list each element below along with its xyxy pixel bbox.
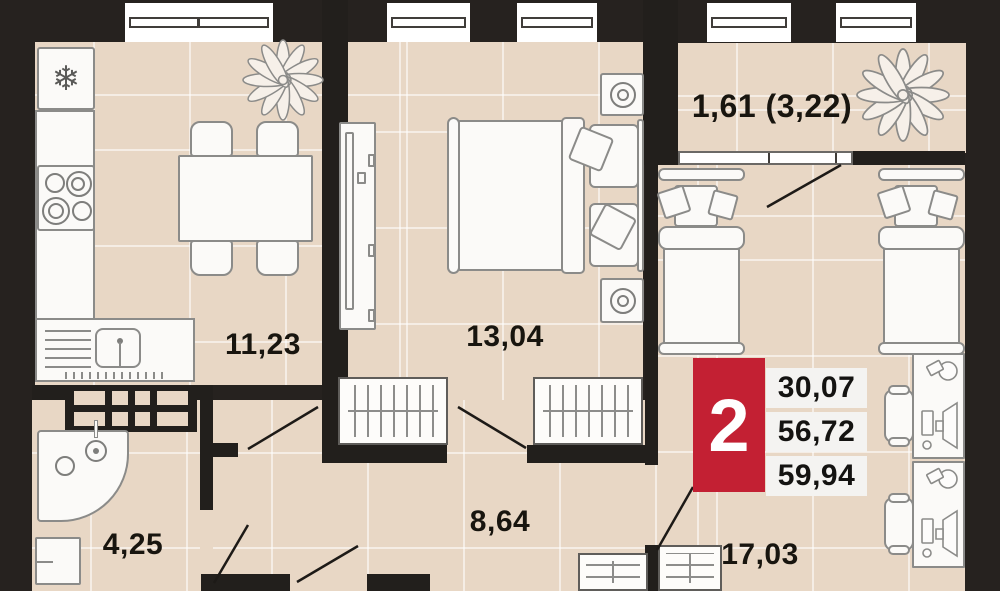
- drainboard: [45, 330, 91, 372]
- chair: [256, 121, 299, 157]
- balcony-window-left: [707, 3, 791, 42]
- kitchen-area-label: 11,23: [203, 328, 323, 362]
- dining-table: [178, 155, 313, 242]
- tv-stand: [339, 122, 376, 330]
- wall-bedroom-bottom-left: [333, 445, 447, 463]
- bathroom-area-label: 4,25: [73, 528, 193, 562]
- bed-mattress: [458, 120, 563, 271]
- desk-chair: [884, 497, 914, 551]
- wardrobe: [578, 553, 648, 591]
- area-total-value: 59,94: [766, 456, 867, 496]
- sink-basin: [95, 328, 141, 368]
- desk-items: [914, 355, 963, 457]
- desk: [912, 353, 965, 459]
- stove: [37, 165, 95, 231]
- fridge-snowflake-icon: ❄: [52, 62, 81, 96]
- nightstand: [600, 73, 644, 116]
- wall-hall-left: [200, 385, 213, 510]
- wardrobe: [338, 377, 448, 445]
- sink-counter: [35, 318, 195, 382]
- area-apartment-value: 56,72: [766, 412, 867, 452]
- bedroom-window-left: [387, 3, 470, 42]
- floor-plan-canvas: ❄: [0, 0, 1000, 591]
- balcony-door-band: [678, 151, 853, 165]
- desk: [912, 461, 965, 568]
- burner: [71, 177, 85, 191]
- single-bed: [878, 168, 965, 355]
- wall-balcony-bottom: [853, 151, 965, 165]
- wall-hall-stub: [213, 443, 238, 457]
- burner: [72, 201, 92, 221]
- single-bed: [658, 168, 745, 355]
- sink-ticks: [65, 372, 163, 379]
- area-living-value: 30,07: [766, 368, 867, 408]
- chair: [256, 240, 299, 276]
- chair: [190, 121, 233, 157]
- balcony-area-label: 1,61 (3,22): [642, 88, 902, 125]
- nightstand: [600, 278, 644, 323]
- bedroom-window-right: [517, 3, 597, 42]
- hallway-area-label: 8,64: [440, 505, 560, 539]
- fridge: ❄: [37, 47, 95, 110]
- balcony-window-right: [836, 3, 916, 42]
- wall-bedroom-bedroom2: [645, 165, 658, 465]
- kitchen-window: [125, 3, 273, 42]
- wardrobe: [533, 377, 643, 445]
- wall-bedroom-bottom-right: [527, 445, 658, 463]
- desk-chair: [884, 389, 914, 443]
- drain: [55, 456, 75, 476]
- burner: [48, 203, 64, 219]
- bedroom2-area-label: 17,03: [700, 538, 820, 572]
- room-count-badge: 2: [693, 358, 765, 492]
- wall-bedroom-balcony: [643, 0, 678, 165]
- vent-shaft: [65, 385, 197, 432]
- wall-entry-right: [367, 574, 430, 591]
- room-count: 2: [708, 383, 749, 468]
- desk-items: [914, 463, 963, 566]
- chair: [190, 240, 233, 276]
- wall-entry-left: [201, 574, 290, 591]
- double-bed: [447, 117, 644, 274]
- burner: [45, 173, 65, 193]
- bedroom-area-label: 13,04: [445, 320, 565, 354]
